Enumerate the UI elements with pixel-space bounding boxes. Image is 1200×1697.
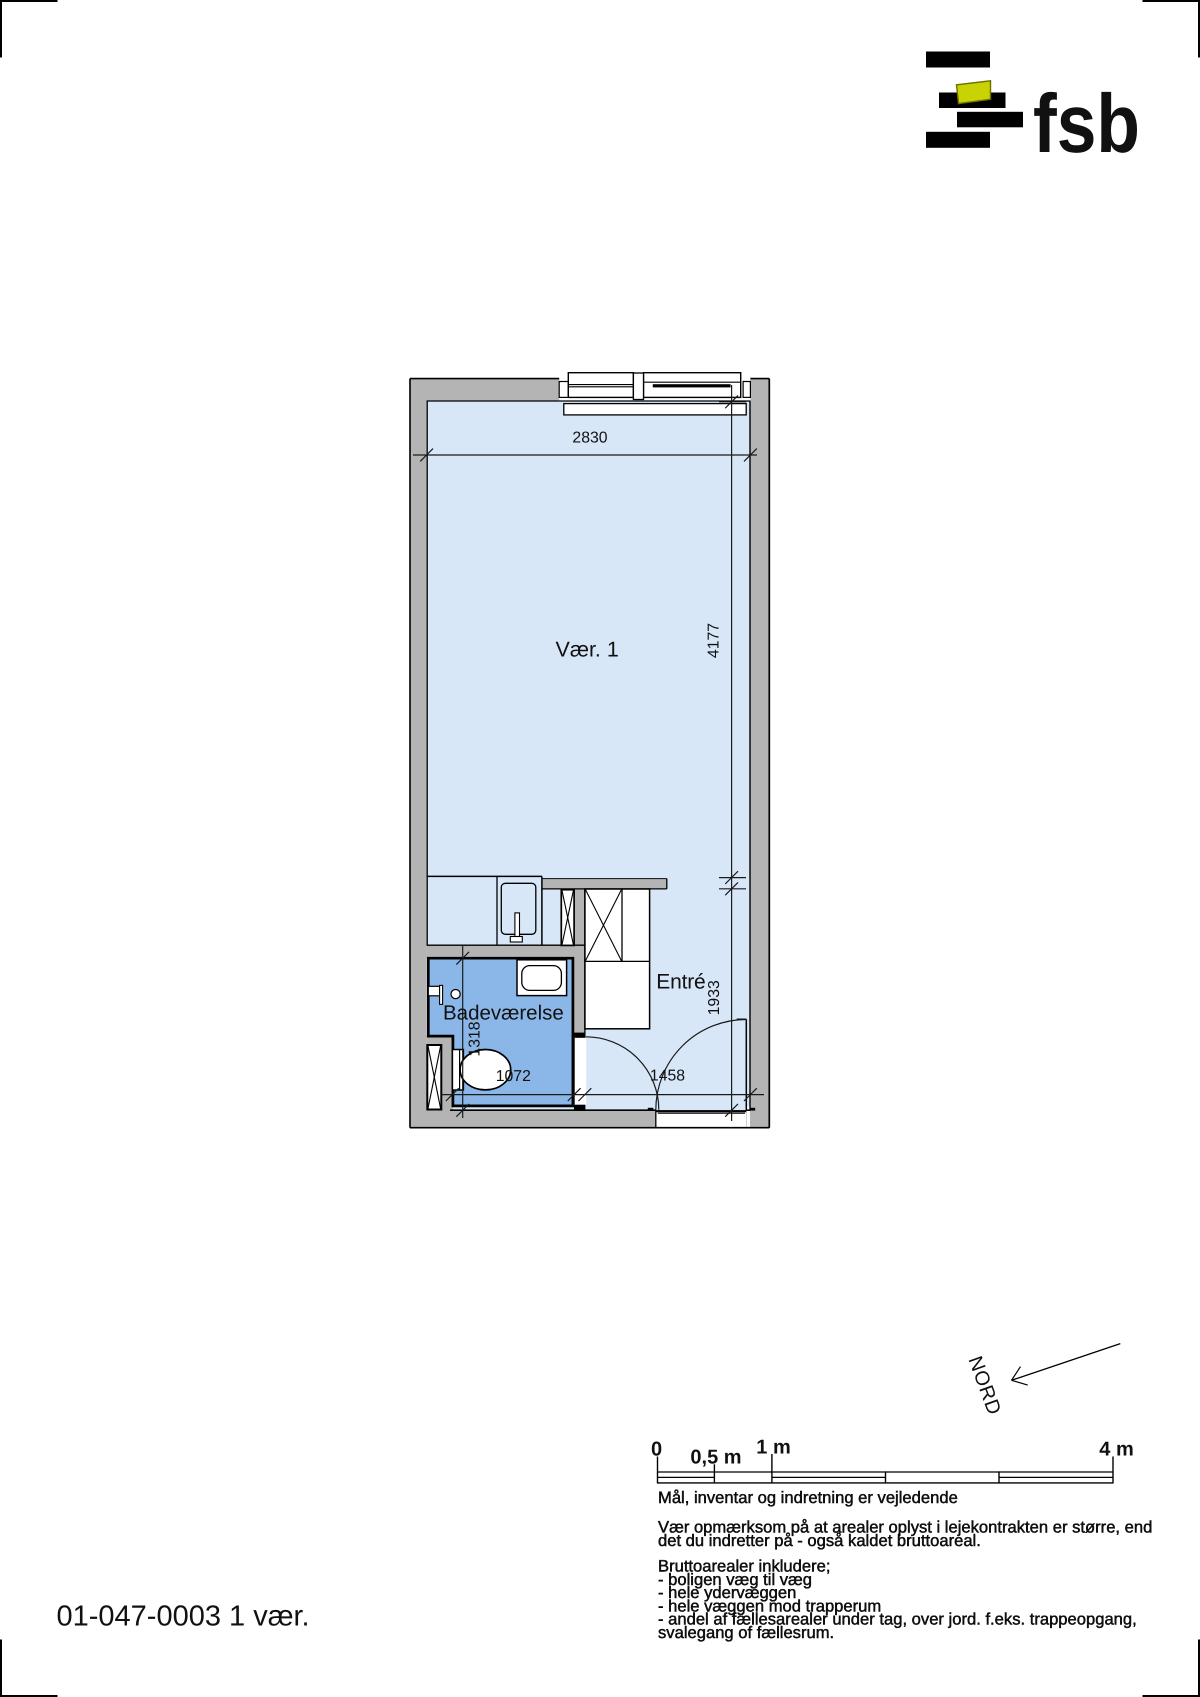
svg-text:1072: 1072 [496, 1068, 531, 1085]
svg-text:Vær. 1: Vær. 1 [556, 637, 619, 661]
svg-text:Entré: Entré [656, 970, 705, 993]
svg-text:det du indretter på - også kal: det du indretter på - også kaldet brutto… [658, 1531, 981, 1550]
svg-text:2830: 2830 [572, 430, 607, 447]
svg-text:1318: 1318 [467, 1021, 484, 1056]
svg-text:svalegang of fællesrum.: svalegang of fællesrum. [658, 1623, 834, 1642]
svg-text:Mål, inventar og indretning er: Mål, inventar og indretning er vejledend… [658, 1488, 958, 1507]
svg-text:1458: 1458 [650, 1068, 685, 1085]
svg-text:4177: 4177 [705, 623, 722, 658]
svg-text:4 m: 4 m [1099, 1439, 1133, 1461]
svg-text:1 m: 1 m [756, 1437, 790, 1459]
svg-text:fsb: fsb [1033, 77, 1140, 170]
svg-text:Badeværelse: Badeværelse [443, 1001, 564, 1024]
svg-text:0,5 m: 0,5 m [690, 1447, 741, 1469]
svg-text:1933: 1933 [706, 980, 723, 1015]
svg-text:0: 0 [651, 1439, 662, 1461]
svg-text:01-047-0003 1 vær.: 01-047-0003 1 vær. [57, 1601, 310, 1633]
svg-text:NORD: NORD [964, 1353, 1005, 1418]
